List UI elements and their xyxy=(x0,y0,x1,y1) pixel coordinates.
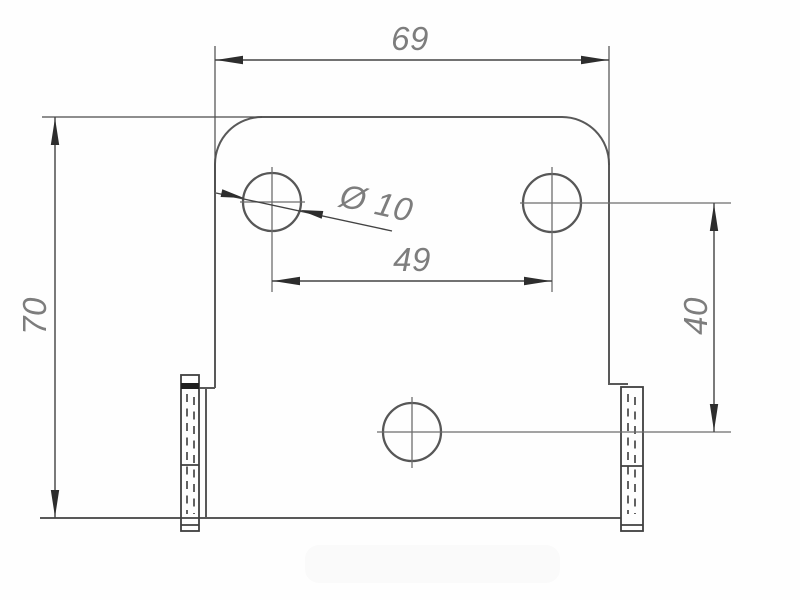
hole-offset-arrow-bottom xyxy=(710,404,718,431)
width-arrow-left xyxy=(216,56,243,64)
height-arrow-top xyxy=(51,118,59,145)
width-dimension-label: 69 xyxy=(391,20,429,57)
width-arrow-right xyxy=(581,56,608,64)
hole-spacing-arrow-left xyxy=(273,277,300,285)
hole-offset-arrow-top xyxy=(710,204,718,231)
left-flange-body xyxy=(181,375,199,531)
bracket-drawing-svg: 69 70 49 40 Ø 10 xyxy=(0,0,800,600)
faint-watermark xyxy=(305,545,560,583)
left-flange xyxy=(181,375,199,531)
dimension-hole-diameter: Ø 10 xyxy=(216,177,417,231)
right-flange-body xyxy=(621,387,643,531)
diameter-arrow-left xyxy=(221,189,244,198)
dimension-hole-spacing: 49 xyxy=(272,241,552,285)
height-dimension-label: 70 xyxy=(16,297,53,335)
hole-spacing-label: 49 xyxy=(393,241,431,278)
hole-offset-label: 40 xyxy=(677,297,714,335)
dimension-hole-offset: 40 xyxy=(677,203,718,432)
technical-drawing-canvas: 69 70 49 40 Ø 10 xyxy=(0,0,800,600)
diameter-arrow-right xyxy=(300,210,323,219)
hole-spacing-arrow-right xyxy=(524,277,551,285)
dimension-overall-height: 70 xyxy=(16,117,262,518)
dimension-overall-width: 69 xyxy=(215,20,609,192)
height-arrow-bottom xyxy=(51,490,59,517)
left-flange-solid-band xyxy=(181,383,199,389)
right-flange xyxy=(621,387,643,531)
